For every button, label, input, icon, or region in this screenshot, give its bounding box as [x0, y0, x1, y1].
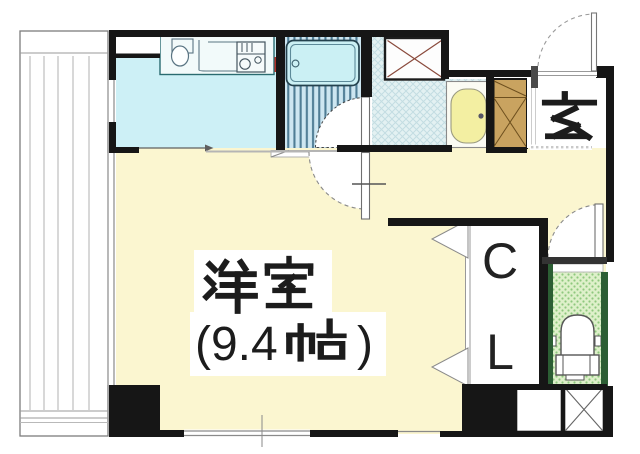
svg-text:L: L	[486, 324, 514, 380]
svg-text:C: C	[482, 233, 518, 289]
svg-text:(9.4: (9.4	[195, 318, 278, 371]
svg-text:): )	[357, 318, 373, 371]
